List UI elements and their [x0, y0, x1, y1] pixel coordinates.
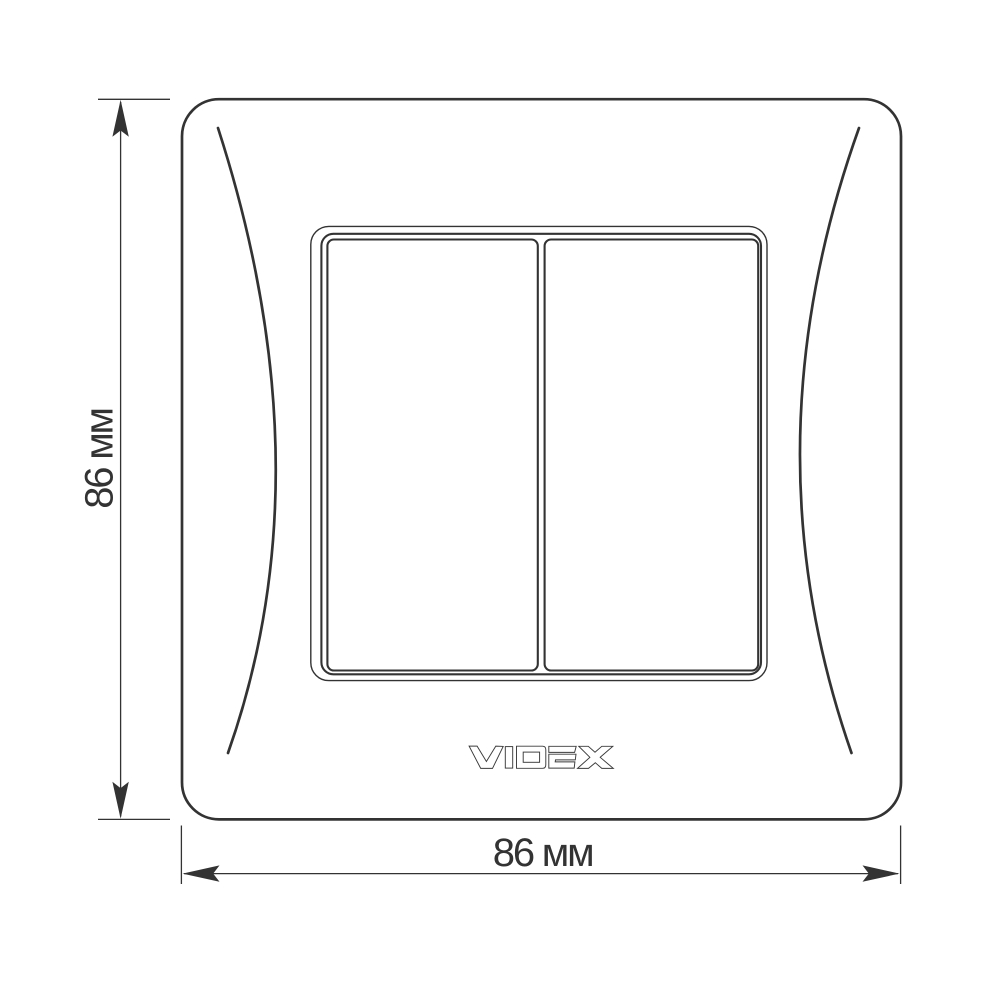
svg-text:86 мм: 86 мм	[493, 831, 593, 875]
svg-text:86 мм: 86 мм	[78, 409, 122, 509]
